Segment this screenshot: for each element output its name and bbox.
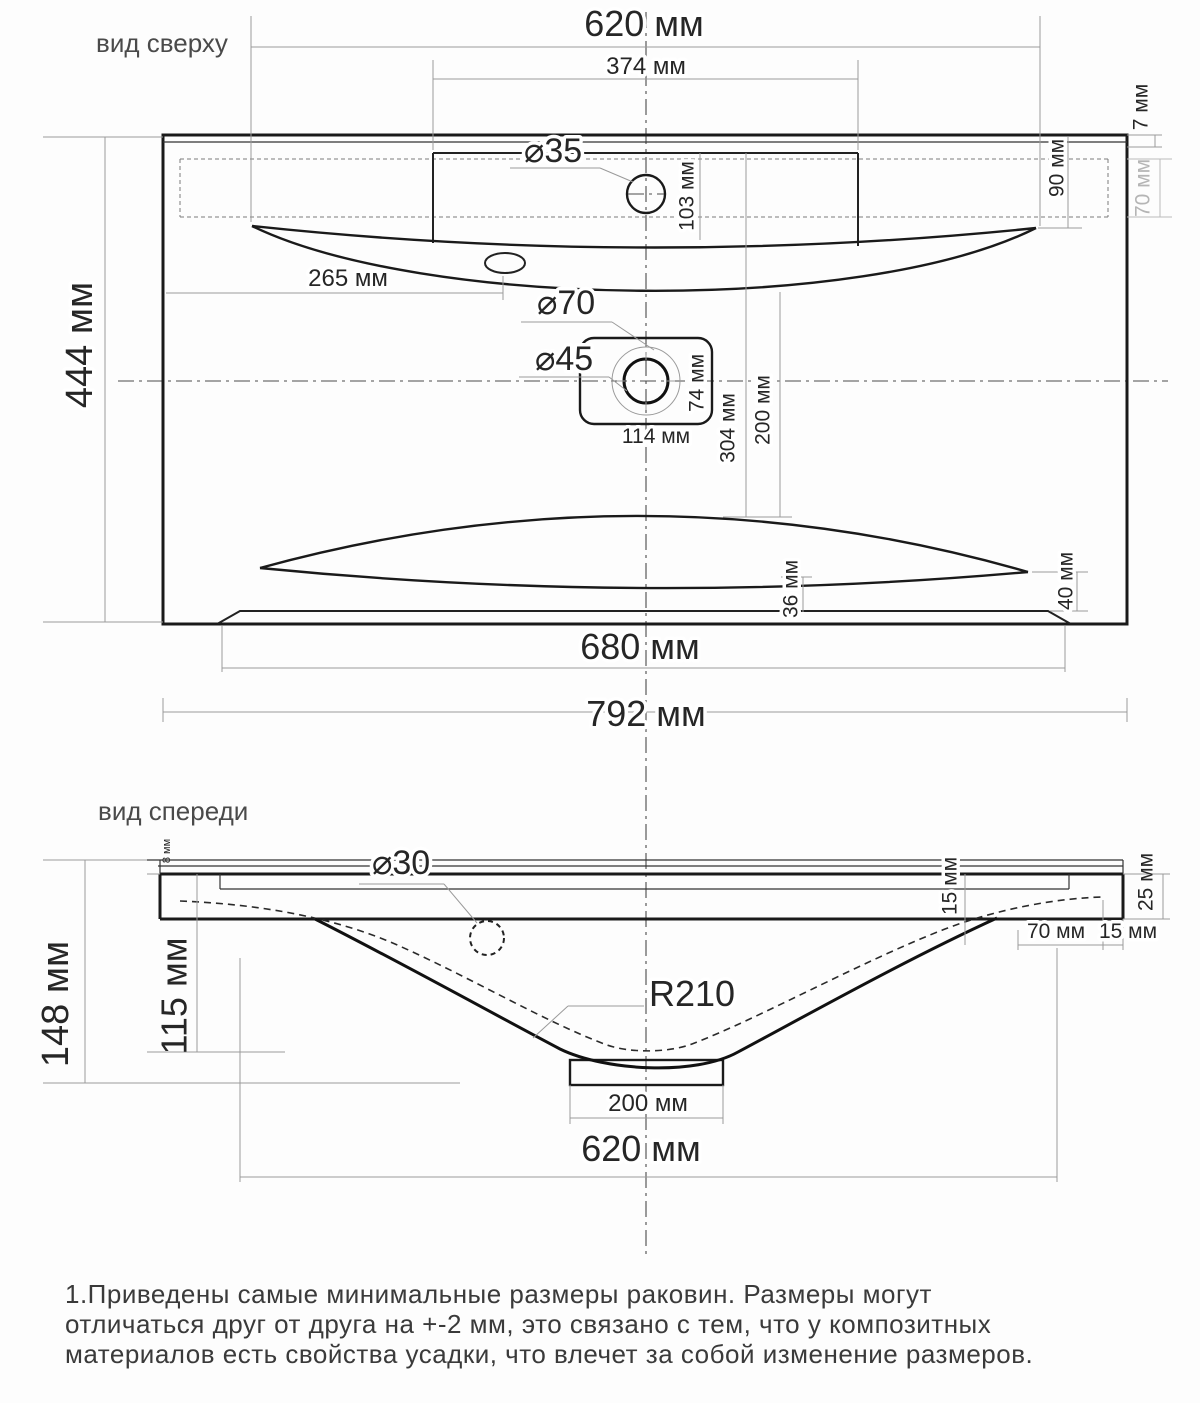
dim-label: 265 мм [308, 265, 388, 292]
dim-15-edge: 15 мм [939, 857, 966, 945]
top-view: вид сверху [43, 3, 1172, 734]
dim-label: 200 мм [608, 1090, 688, 1117]
bowl-front-contour [260, 568, 1028, 588]
leader-line [444, 884, 477, 923]
note-line: отличаться друг от друга на +-2 мм, это … [65, 1309, 991, 1339]
dim-304: 304 мм [717, 153, 793, 517]
dim-115: 115 мм [147, 874, 285, 1054]
dim-7: 7 мм [1127, 84, 1162, 147]
sink-dimension-drawing: вид сверху [0, 0, 1200, 1398]
dim-label-114: 114 мм [622, 425, 690, 448]
dim-792: 792 мм [163, 693, 1127, 734]
dim-label: 70 мм [1027, 920, 1085, 943]
dim-label: 792 мм [586, 693, 706, 734]
dim-label: 15 мм [1099, 920, 1157, 943]
note-line: 1.Приведены самые минимальные размеры ра… [65, 1279, 932, 1309]
notes-block: 1.Приведены самые минимальные размеры ра… [65, 1279, 1033, 1369]
dim-40: 40 мм [1032, 552, 1088, 611]
dim-label: 7 мм [1130, 84, 1153, 130]
dim-label: 115 мм [154, 938, 195, 1055]
dim-label: 200 мм [752, 375, 775, 445]
dim-label: 444 мм [59, 282, 101, 408]
basin-back-edge [252, 226, 1036, 248]
dim-label: 25 мм [1135, 853, 1158, 911]
dim-200-top: 200 мм [752, 292, 781, 517]
overflow-hole [485, 253, 525, 273]
dim-265: 265 мм [166, 265, 503, 300]
front-view: вид спереди 8 мм ⌀30 [35, 796, 1170, 1182]
top-view-title: вид сверху [96, 28, 228, 58]
dim-label: 103 мм [676, 161, 699, 231]
dim-label: 15 мм [939, 857, 962, 915]
diameter-label: ⌀70 [537, 284, 595, 322]
diameter-label: ⌀35 [524, 132, 582, 170]
radius-label: R210 [649, 973, 735, 1014]
callout-dia-35: ⌀35 [510, 132, 633, 182]
dim-200-front: 200 мм [570, 1085, 723, 1124]
leader-line [612, 322, 654, 350]
diameter-label: ⌀45 [535, 340, 593, 378]
dim-label: 148 мм [35, 941, 77, 1067]
dim-label: 40 мм [1055, 552, 1078, 610]
dim-90: 90 мм [1038, 137, 1082, 228]
dim-label: 620 мм [581, 1128, 701, 1169]
dim-25: 25 мм [1123, 853, 1170, 919]
dim-148: 148 мм [35, 860, 460, 1083]
dim-label: 8 мм [161, 839, 173, 863]
dim-label: 90 мм [1046, 139, 1069, 197]
counter-slab [147, 860, 1123, 919]
overflow-hole-hidden [470, 921, 504, 955]
dim-70-gray: 70 мм [1127, 159, 1172, 217]
dim-label: 620 мм [584, 3, 704, 44]
dim-103: 103 мм [676, 153, 701, 240]
drawing-canvas: вид сверху [0, 0, 1200, 1398]
dim-444: 444 мм [43, 137, 163, 622]
dim-680: 680 мм [222, 626, 1065, 672]
dim-label: 36 мм [780, 560, 803, 618]
front-view-title: вид спереди [98, 796, 248, 826]
leader-line [600, 168, 633, 182]
leader-line [533, 1006, 568, 1038]
note-line: материалов есть свойства усадки, что вле… [65, 1339, 1033, 1369]
callout-dia-45: ⌀45 [519, 340, 627, 391]
hidden-recess-dashed [180, 159, 1108, 217]
dim-36: 36 мм [780, 560, 813, 618]
pedestal-outline [218, 611, 1070, 624]
dim-label: 374 мм [606, 53, 686, 80]
dim-label: 304 мм [717, 393, 740, 463]
sink-outline-top [163, 135, 1127, 624]
dim-label-74: 74 мм [686, 354, 709, 412]
bowl-bottom-contour [260, 516, 1028, 572]
callout-r210: R210 [533, 973, 735, 1038]
dim-label: 680 мм [580, 626, 700, 667]
diameter-label: ⌀30 [372, 844, 430, 882]
dim-label: 70 мм [1132, 159, 1155, 217]
